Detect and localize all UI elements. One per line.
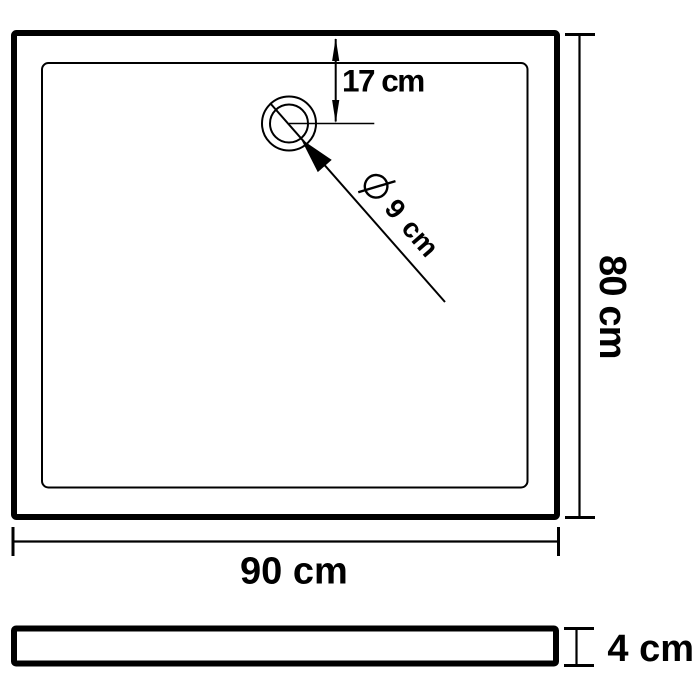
svg-text:4 cm: 4 cm [607, 628, 694, 670]
svg-text:17 cm: 17 cm [342, 63, 424, 99]
svg-text:80 cm: 80 cm [591, 255, 633, 359]
svg-text:90 cm: 90 cm [240, 551, 348, 593]
